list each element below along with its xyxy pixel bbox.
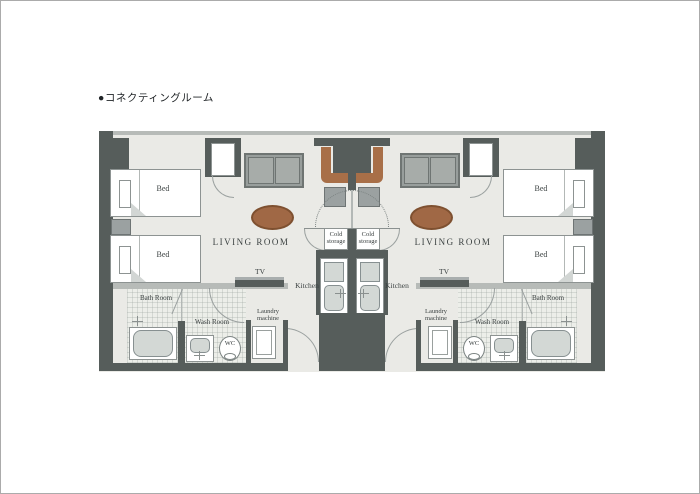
cold-storage-label: Cold storage xyxy=(325,229,347,245)
bathtub xyxy=(531,330,571,357)
toilet-seat-icon xyxy=(468,353,480,360)
kitchen-stove xyxy=(360,262,380,282)
bath-room-label: Bath Room xyxy=(135,294,177,302)
bathtub xyxy=(133,330,173,357)
bed-2-label: Bed xyxy=(507,250,575,260)
living-room-label: LIVING ROOM xyxy=(398,237,508,248)
wc-label: WC xyxy=(464,337,484,347)
bed-1-label: Bed xyxy=(507,184,575,194)
closet-door-swing-icon xyxy=(212,176,234,198)
nightstand xyxy=(111,219,131,235)
sofa xyxy=(244,153,304,188)
toilet-seat-icon xyxy=(224,353,236,360)
tv-label: TV xyxy=(244,267,276,276)
entry-door-swing-icon xyxy=(285,328,319,362)
desk-alcove-block xyxy=(352,145,371,173)
laundry-machine xyxy=(428,326,452,359)
wc-label: WC xyxy=(220,337,240,347)
toilet: WC xyxy=(219,336,241,361)
page-title: ●コネクティングルーム xyxy=(98,90,214,105)
toilet: WC xyxy=(463,336,485,361)
cold-storage-box: Cold storage xyxy=(324,228,348,250)
kitchen-door-swing-icon xyxy=(304,229,326,251)
tv-label: TV xyxy=(428,267,460,276)
laundry-side-wall xyxy=(416,320,421,363)
laundry-door-icon xyxy=(256,330,272,355)
closet-door xyxy=(469,143,493,176)
basin-faucet-icon xyxy=(199,351,200,360)
wash-laundry-wall xyxy=(453,320,458,363)
cold-storage-box: Cold storage xyxy=(356,228,380,250)
coffee-table xyxy=(410,205,453,230)
kitchen-top-wall xyxy=(316,250,352,258)
exterior-wall-top xyxy=(352,131,605,135)
entry-core-block xyxy=(352,313,385,371)
floor-plan: Cold storage Bed Bed LIVING ROOM TV Ki xyxy=(99,131,605,372)
laundry-machine xyxy=(252,326,276,359)
laundry-label: Laundry machine xyxy=(415,308,457,322)
cold-storage-label: Cold storage xyxy=(357,229,379,245)
nightstand xyxy=(573,219,593,235)
exterior-wall-bottom xyxy=(99,363,288,371)
wash-room-label: Wash Room xyxy=(471,318,513,326)
bath-partition-line xyxy=(181,289,182,322)
bath-wash-wall xyxy=(178,321,185,363)
living-room-label: LIVING ROOM xyxy=(196,237,306,248)
entry-core-block xyxy=(319,313,352,371)
kitchen-top-wall xyxy=(352,250,388,258)
bath-room-label: Bath Room xyxy=(527,294,569,302)
closet-door xyxy=(211,143,235,176)
kitchen-faucet-icon xyxy=(363,289,364,298)
connecting-door-panel xyxy=(352,190,353,229)
bed-1-label: Bed xyxy=(129,184,197,194)
sofa xyxy=(400,153,460,188)
basin-faucet-icon xyxy=(504,351,505,360)
connecting-door-swing-icon xyxy=(352,190,389,227)
bathtub-faucet-icon xyxy=(137,316,138,326)
closet-door-swing-icon xyxy=(470,176,492,198)
center-wall-upper xyxy=(352,173,356,190)
room-left: Cold storage Bed Bed LIVING ROOM TV Ki xyxy=(99,131,352,372)
kitchen-door-swing-icon xyxy=(378,229,400,251)
desk-alcove-block xyxy=(333,145,352,173)
laundry-door-icon xyxy=(432,330,448,355)
room-right: Cold storage Bed Bed LIVING ROOM TV Ki xyxy=(352,131,605,372)
tv-stand xyxy=(420,280,469,287)
wash-laundry-wall xyxy=(246,320,251,363)
bath-wash-wall xyxy=(519,321,526,363)
bathtub-faucet-icon xyxy=(566,316,567,326)
exterior-wall-top xyxy=(99,131,352,135)
wash-room-label: Wash Room xyxy=(191,318,233,326)
tv-stand xyxy=(235,280,284,287)
kitchen-faucet-icon xyxy=(340,289,341,298)
kitchen-stove xyxy=(324,262,344,282)
connecting-door-swing-icon xyxy=(315,190,352,227)
coffee-table xyxy=(251,205,294,230)
exterior-wall-bottom xyxy=(416,363,605,371)
bed-2-label: Bed xyxy=(129,250,197,260)
entry-door-swing-icon xyxy=(385,328,419,362)
kitchen-label: Kitchen xyxy=(375,281,419,290)
kitchen-label: Kitchen xyxy=(285,281,329,290)
wash-basin xyxy=(190,338,210,353)
laundry-side-wall xyxy=(283,320,288,363)
